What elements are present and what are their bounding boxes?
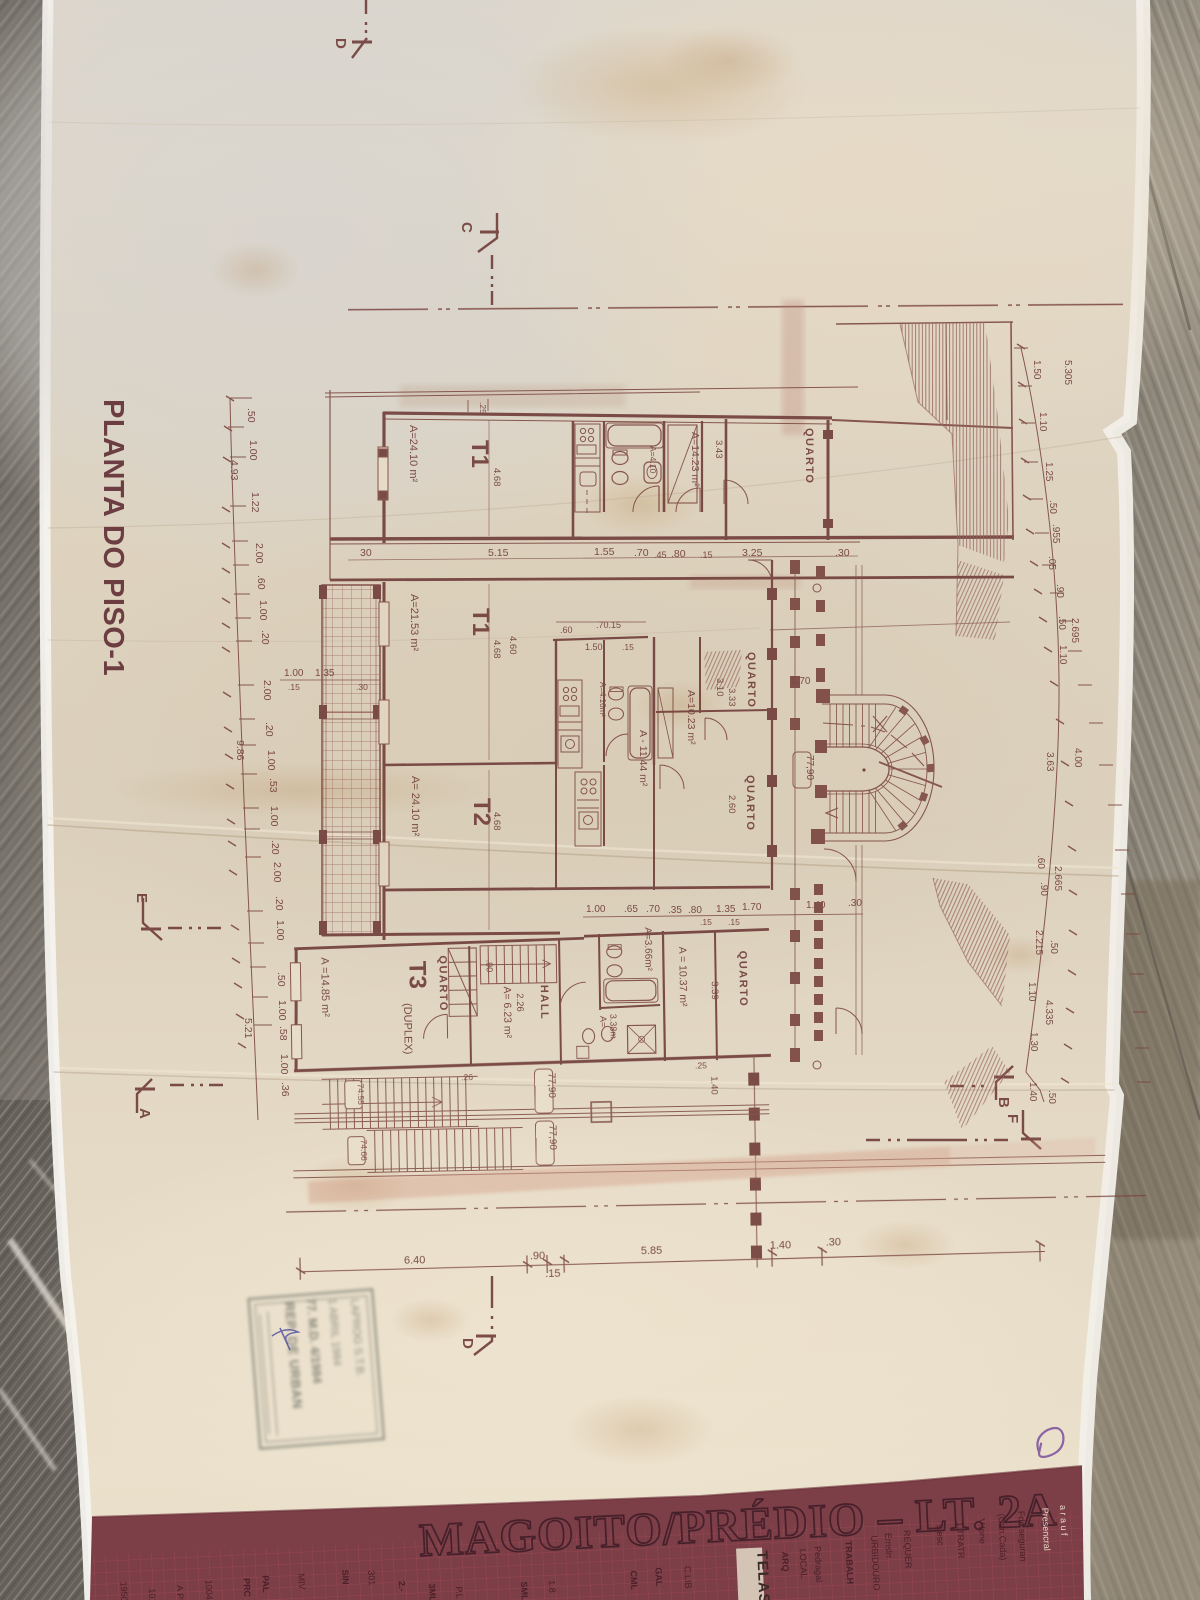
svg-text:1.TRATR: 1.TRATR	[955, 1521, 967, 1559]
svg-text:P.L: P.L	[454, 1586, 465, 1599]
svg-text:1.00: 1.00	[247, 440, 259, 461]
svg-text:4.00: 4.00	[1072, 748, 1083, 768]
svg-text:1.00: 1.00	[276, 1000, 288, 1021]
svg-text:QUARTO: QUARTO	[436, 955, 449, 1012]
svg-text:HALL: HALL	[538, 985, 551, 1021]
svg-text:.60: .60	[560, 625, 573, 635]
svg-text:2.695: 2.695	[1069, 618, 1080, 643]
svg-text:5.305: 5.305	[1062, 360, 1073, 385]
svg-text:.53: .53	[267, 778, 279, 793]
svg-text:.35: .35	[668, 905, 682, 916]
svg-text:E: E	[133, 893, 150, 903]
svg-text:.90: .90	[484, 960, 494, 973]
svg-text:.20: .20	[263, 722, 275, 737]
svg-text:Presencral: Presencral	[1040, 1508, 1052, 1551]
svg-text:.20: .20	[273, 896, 285, 911]
svg-text:2.26: 2.26	[514, 993, 525, 1012]
svg-text:1.10: 1.10	[1026, 982, 1037, 1002]
svg-text:1.35: 1.35	[716, 904, 736, 915]
svg-text:PLANTA DO PISO-1: PLANTA DO PISO-1	[97, 399, 129, 676]
svg-text:A = 10.37 m²: A = 10.37 m²	[676, 947, 689, 1008]
svg-text:.15: .15	[700, 917, 712, 927]
svg-text:1.55: 1.55	[594, 546, 615, 558]
svg-text:1.70: 1.70	[742, 902, 762, 913]
svg-text:2.00: 2.00	[271, 862, 283, 883]
svg-text:A=: A=	[598, 1016, 608, 1027]
svg-text:A =14.85 m²: A =14.85 m²	[318, 957, 331, 1017]
svg-text:2.00: 2.00	[253, 543, 265, 564]
svg-text:ARQ: ARQ	[780, 1551, 791, 1571]
svg-text:77,90: 77,90	[547, 1125, 558, 1151]
svg-text:.30: .30	[356, 682, 368, 692]
svg-text:A=4.10: A=4.10	[648, 446, 658, 473]
svg-text:4.335: 4.335	[1043, 1000, 1054, 1025]
svg-text:A=21.53 m²: A=21.53 m²	[408, 594, 420, 652]
svg-text:1.00: 1.00	[284, 668, 304, 679]
svg-text:D: D	[332, 38, 349, 49]
svg-text:3.33: 3.33	[726, 688, 737, 707]
svg-text:1.35: 1.35	[315, 668, 335, 679]
svg-text:.90: .90	[530, 1250, 546, 1262]
svg-text:1.40: 1.40	[708, 1076, 719, 1095]
svg-text:GAL: GAL	[653, 1567, 664, 1587]
svg-text:9.86: 9.86	[234, 740, 246, 761]
svg-text:CML: CML	[629, 1570, 640, 1590]
svg-text:PAL: PAL	[260, 1575, 271, 1593]
svg-text:.60: .60	[1035, 855, 1046, 869]
svg-text:s/esc: s/esc	[935, 1524, 946, 1546]
svg-text:3.10: 3.10	[714, 678, 725, 697]
svg-text:.70: .70	[634, 547, 649, 559]
svg-text:A=4.16m²: A=4.16m²	[598, 682, 607, 717]
svg-text:.80: .80	[671, 548, 686, 560]
svg-text:1.10: 1.10	[1037, 412, 1048, 432]
svg-text:.50: .50	[275, 972, 287, 987]
svg-text:.05: .05	[1046, 556, 1057, 570]
svg-text:.50: .50	[1056, 616, 1067, 630]
svg-text:1.00: 1.00	[257, 600, 269, 621]
svg-text:REQUER: REQUER	[902, 1530, 914, 1569]
svg-text:A=24.10 m²: A=24.10 m²	[407, 425, 419, 483]
svg-text:A= 6.23 m²: A= 6.23 m²	[501, 986, 514, 1038]
svg-text:A=14.23 m²: A=14.23 m²	[689, 432, 701, 487]
svg-text:2.-: 2.-	[397, 1581, 407, 1592]
svg-text:A PR: A PR	[175, 1585, 186, 1600]
svg-text:A: A	[136, 1108, 153, 1119]
svg-text:QUARTO: QUARTO	[736, 951, 749, 1008]
svg-text:1.25: 1.25	[1043, 462, 1054, 482]
svg-text:.15: .15	[288, 682, 300, 692]
svg-text:101: 101	[147, 1588, 158, 1600]
svg-text:.90: .90	[1038, 882, 1049, 896]
svg-text:1.10: 1.10	[1057, 645, 1068, 665]
svg-text:2.215: 2.215	[1033, 930, 1044, 955]
svg-text:SML: SML	[519, 1581, 530, 1600]
svg-text:5.21: 5.21	[242, 1018, 254, 1039]
svg-text:1.50: 1.50	[585, 642, 603, 652]
svg-text:Pedragal: Pedragal	[813, 1546, 825, 1582]
svg-text:.45: .45	[654, 550, 667, 560]
svg-text:1.30: 1.30	[1028, 1032, 1039, 1052]
svg-text:A - 11.44 m²: A - 11.44 m²	[637, 730, 649, 787]
svg-text:QUARTO: QUARTO	[744, 775, 756, 831]
svg-text:5.15: 5.15	[488, 547, 509, 559]
svg-text:1.8: 1.8	[547, 1580, 558, 1593]
svg-text:A=10.23 m²: A=10.23 m²	[685, 690, 697, 745]
svg-text:A=3.66m²: A=3.66m²	[642, 927, 654, 971]
svg-text:3.39: 3.39	[709, 981, 720, 1000]
svg-text:.30: .30	[826, 1236, 842, 1248]
svg-text:.20: .20	[269, 840, 281, 855]
svg-text:.50: .50	[1047, 500, 1058, 514]
svg-text:LOCAL: LOCAL	[798, 1549, 809, 1579]
svg-text:B: B	[995, 1097, 1012, 1108]
svg-text:1.00: 1.00	[586, 904, 606, 915]
svg-text:A= 24.10 m²: A= 24.10 m²	[409, 776, 421, 837]
svg-text:5.85: 5.85	[641, 1245, 663, 1257]
svg-text:TELAS: TELAS	[753, 1550, 772, 1600]
svg-text:C.LIB: C.LIB	[682, 1566, 693, 1589]
svg-text:.30: .30	[835, 547, 850, 559]
svg-text:.65: .65	[624, 904, 638, 915]
svg-text:1.00: 1.00	[268, 806, 280, 827]
svg-text:3.43: 3.43	[713, 440, 724, 459]
svg-text:V.tone: V.tone	[977, 1518, 988, 1544]
svg-text:(Can.Cada): (Can.Cada)	[996, 1514, 1008, 1561]
svg-text:.80: .80	[688, 905, 702, 916]
svg-text:3.38m: 3.38m	[608, 1014, 618, 1039]
svg-text:C: C	[458, 222, 475, 233]
svg-text:1.40: 1.40	[770, 1239, 792, 1251]
svg-text:1.00: 1.00	[265, 750, 277, 771]
svg-text:.90: .90	[1054, 584, 1065, 598]
svg-text:4.68: 4.68	[491, 640, 502, 659]
svg-text:77,90: 77,90	[804, 755, 815, 780]
svg-text:T3: T3	[403, 961, 430, 989]
svg-text:4.60: 4.60	[507, 636, 518, 655]
svg-text:301: 301	[366, 1570, 377, 1585]
svg-text:1.22: 1.22	[249, 492, 261, 513]
svg-text:.20: .20	[259, 630, 271, 645]
svg-text:6.40: 6.40	[404, 1254, 426, 1266]
svg-text:.15: .15	[622, 642, 634, 652]
svg-text:(DUPLEX): (DUPLEX)	[401, 1003, 414, 1055]
svg-text:D: D	[459, 1338, 476, 1349]
svg-text:MIV: MIV	[296, 1573, 307, 1589]
svg-text:.30: .30	[848, 898, 862, 909]
svg-text:1004: 1004	[203, 1580, 214, 1600]
svg-text:1.00: 1.00	[274, 920, 286, 941]
svg-text:.70.15: .70.15	[596, 620, 621, 630]
svg-text:.50: .50	[1046, 1090, 1057, 1104]
svg-text:1.50: 1.50	[1031, 360, 1042, 380]
svg-text:1.40: 1.40	[1027, 1082, 1038, 1102]
svg-text:Emsln: Emsln	[883, 1533, 894, 1558]
svg-text:2.60: 2.60	[726, 795, 737, 814]
svg-text:.955: .955	[1050, 524, 1061, 544]
svg-text:T2: T2	[468, 798, 495, 826]
svg-text:74.66: 74.66	[359, 1139, 369, 1161]
svg-text:F: F	[1004, 1114, 1021, 1123]
svg-text:30: 30	[360, 547, 372, 559]
svg-text:a r a u f: a r a u f	[1058, 1505, 1069, 1536]
svg-text:.15: .15	[700, 550, 713, 560]
svg-text:SIN: SIN	[340, 1569, 351, 1584]
svg-text:1950: 1950	[118, 1581, 129, 1600]
svg-text:74.55: 74.55	[356, 1083, 366, 1105]
svg-text:T1: T1	[467, 608, 494, 636]
svg-text:.58: .58	[277, 1026, 289, 1041]
svg-text:1.00: 1.00	[278, 1054, 290, 1075]
svg-text:TRABALH: TRABALH	[843, 1540, 855, 1584]
svg-text:PRC: PRC	[241, 1578, 252, 1598]
svg-text:1.70: 1.70	[791, 676, 811, 687]
svg-text:4.93: 4.93	[228, 460, 240, 481]
svg-text:3.63: 3.63	[1044, 752, 1055, 772]
svg-text:.50: .50	[245, 408, 257, 423]
svg-text:77,90: 77,90	[546, 1073, 557, 1099]
svg-text:.50: .50	[1048, 940, 1059, 954]
svg-text:3ML: 3ML	[427, 1583, 438, 1600]
svg-text:4.68: 4.68	[491, 812, 502, 831]
svg-text:.36: .36	[279, 1082, 291, 1097]
svg-text:.60: .60	[255, 575, 267, 590]
svg-text:.25: .25	[478, 402, 488, 414]
svg-text:.15: .15	[728, 917, 740, 927]
svg-text:QUARTO: QUARTO	[745, 652, 757, 708]
svg-text:.70: .70	[646, 904, 660, 915]
svg-text:.15: .15	[545, 1268, 561, 1280]
svg-text:.25: .25	[695, 1060, 707, 1070]
svg-text:QUARTO: QUARTO	[803, 428, 815, 484]
svg-text:4.68: 4.68	[491, 468, 502, 487]
svg-text:2.00: 2.00	[261, 680, 273, 701]
svg-text:2.665: 2.665	[1052, 866, 1063, 891]
